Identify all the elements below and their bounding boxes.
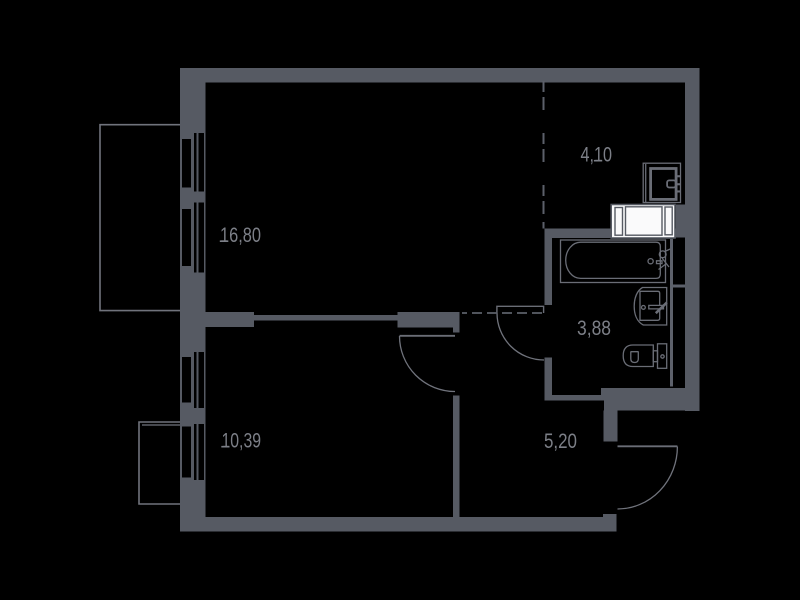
svg-text:4,10: 4,10 (581, 143, 613, 167)
svg-text:16,80: 16,80 (220, 223, 261, 247)
svg-text:3,88: 3,88 (577, 316, 611, 340)
svg-text:10,39: 10,39 (222, 429, 262, 453)
svg-text:5,20: 5,20 (544, 429, 577, 453)
